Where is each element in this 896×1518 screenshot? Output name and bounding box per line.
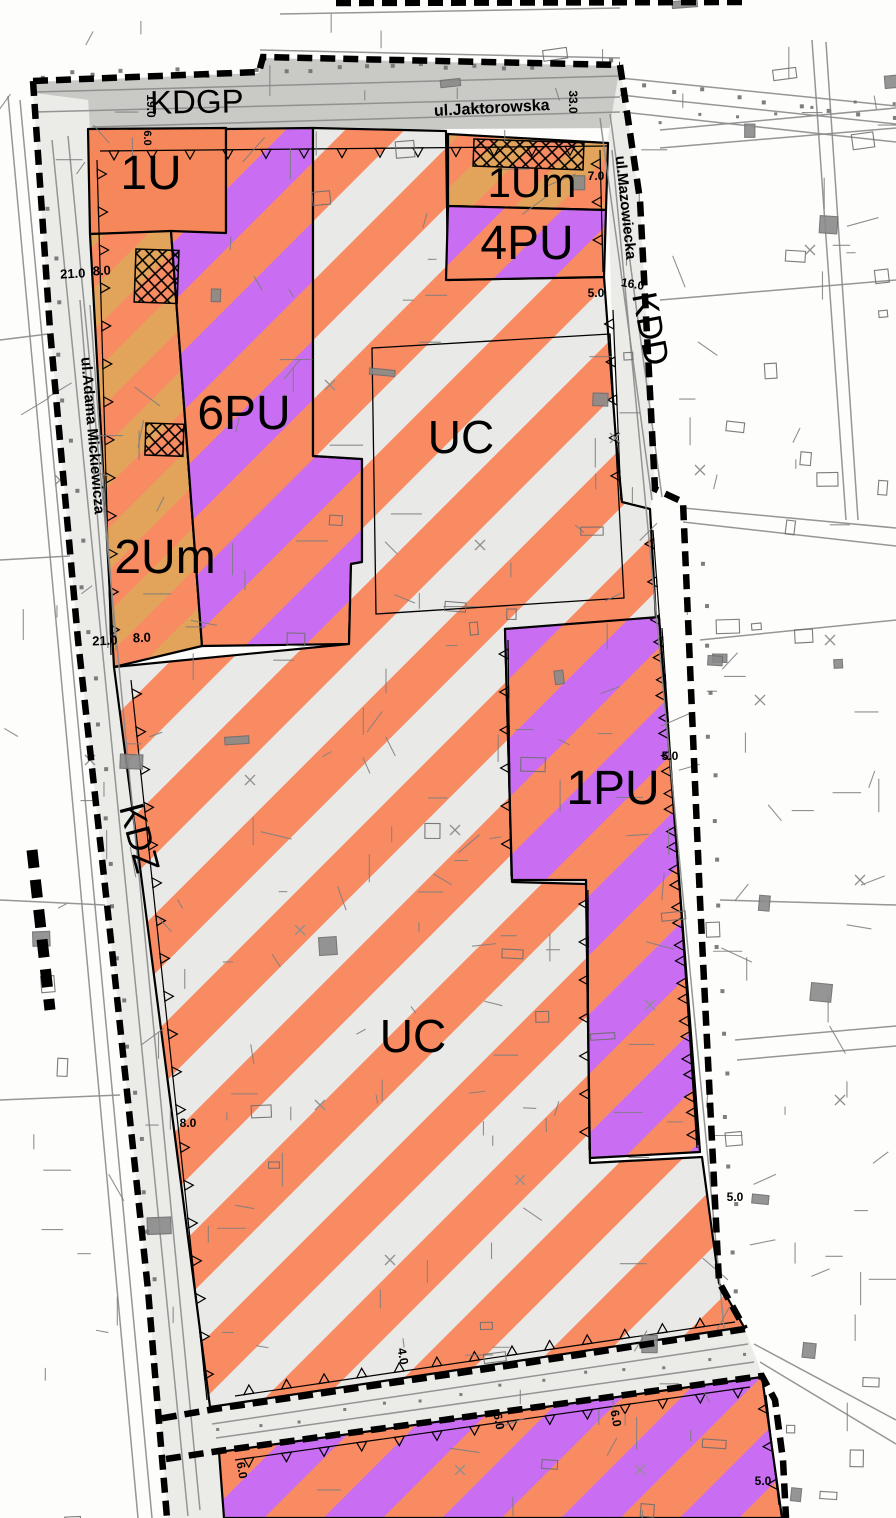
cadastre-tree-dot [70,70,74,74]
cadastre-tree-dot [57,300,61,304]
cadastre-tree-dot [45,207,49,211]
dim-5-0-b: 5.0 [662,749,679,763]
cadastre-tree-dot [142,1190,146,1194]
cadastre-tree-dot [734,1289,738,1293]
cadastre-tree-dot [713,819,717,823]
cadastre-tree-dot [530,66,534,70]
cadastre-tree-dot [94,676,98,680]
cadastre-tree-dot [715,945,719,949]
cadastre-tree-dot [698,113,701,116]
cadastre-tree-dot [743,1353,746,1356]
cadastre-tree-dot [153,1277,157,1281]
cadastre-tree-dot [810,106,813,109]
cadastre-tree-dot [893,102,896,105]
cadastre-tree-dot [726,1165,730,1169]
dim-19-0: 19.0 [144,94,158,118]
cadastre-tree-dot [701,562,705,566]
zone-label-1um: 1Um [488,159,577,206]
cadastre-tree-dot [700,87,704,91]
cadastre-building [147,1217,171,1235]
cadastre-building [440,79,460,88]
cadastre-tree-dot [140,1137,144,1141]
cadastre-tree-dot [672,90,676,94]
cadastre-tree-dot [502,66,506,70]
cadastre-tree-dot [856,112,860,116]
dim-8-0-c: 8.0 [180,1116,197,1130]
cadastre-tree-dot [736,115,739,118]
cadastre-tree-dot [69,439,73,443]
cadastre-tree-dot [705,644,709,648]
cadastre-tree-dot [216,1428,219,1431]
cadastre-tree-dot [662,1366,665,1369]
cadastre-building [884,74,896,88]
cadastre-tree-dot [86,630,90,634]
dim-8-0-b: 8.0 [133,630,152,646]
cadastre-tree-dot [854,100,857,103]
cadastre-building [318,937,337,956]
cadastre-tree-dot [459,1393,462,1396]
cadastre-segment [230,237,231,250]
dim-5-0-c: 5.0 [727,1190,744,1204]
cadastre-tree-dot [827,109,831,113]
cadastre-tree-dot [81,539,85,543]
cadastre-building [593,393,609,406]
cadastre-tree-dot [365,64,369,68]
dim-6-0-c: 6.0 [234,1461,251,1480]
cadastre-tree-dot [104,816,108,820]
cadastre-tree-dot [419,1399,422,1402]
zone-label-6pu: 6PU [197,387,290,440]
cadastre-tree-dot [109,862,113,866]
cadastre-tree-dot [738,95,742,99]
cadastre-tree-dot [774,112,777,115]
crosshatch-area [134,249,179,303]
cadastre-tree-dot [298,1420,301,1423]
cadastre-tree-dot [60,399,64,403]
cadastre-tree-dot [725,1071,729,1075]
cadastre-tree-dot [722,1032,726,1036]
zone-label-uc-north: UC [428,411,494,463]
cadastre-tree-dot [104,767,108,771]
cadastre-building [790,1488,801,1502]
cadastre-tree-dot [343,1408,346,1411]
cadastre-tree-dot [54,256,58,260]
cadastre-tree-dot [80,585,84,589]
dim-5-0-a: 5.0 [588,286,605,300]
cadastre-tree-dot [96,722,100,726]
cadastre-building [554,670,564,685]
cadastre-tree-dot [706,735,710,739]
cadastre-tree-dot [622,1368,625,1371]
dim-33-0: 33.0 [566,90,580,114]
cadastre-tree-dot [133,1091,137,1095]
cadastre-tree-dot [255,68,259,72]
cadastre-tree-dot [259,1424,262,1427]
cadastre-tree-dot [762,100,766,104]
cadastre-tree-dot [542,1379,545,1382]
dim-21-0-a: 21.0 [60,265,86,281]
road-label-kdgp: KDGP [150,82,244,121]
cadastre-building [819,216,838,234]
cadastre-tree-dot [338,65,342,69]
cadastre-tree-dot [176,67,180,71]
dim-8-0-a: 8.0 [92,263,111,279]
cadastre-building [225,736,250,745]
zoning-map: KDGPul.Jaktorowska19.06.033.01U1Um7.04PU… [0,0,896,1518]
cadastre-tree-dot [145,1230,149,1234]
cadastre-tree-dot [122,998,126,1002]
cadastre-building [752,1194,769,1205]
zoning-map-canvas: KDGPul.Jaktorowska19.06.033.01U1Um7.04PU… [0,0,896,1518]
cadastre-tree-dot [723,1115,727,1119]
cadastre-building [834,659,843,668]
cadastre-tree-dot [584,1371,587,1374]
cadastre-tree-dot [285,69,289,73]
crosshatch-area [145,423,184,456]
cadastre-tree-dot [716,904,720,908]
dim-6-0-d: 6.0 [608,1409,625,1428]
cadastre-tree-dot [709,691,713,695]
dim-5-0-d: 5.0 [755,1474,772,1488]
cadastre-building [802,1342,816,1358]
cadastre-tree-dot [308,69,312,73]
cadastre-tree-dot [720,989,724,993]
cadastre-tree-dot [705,604,709,608]
zone-label-uc-south: UC [380,1010,446,1062]
zone-label-1pu: 1PU [566,762,659,815]
cadastre-tree-dot [800,104,804,108]
dim-6-0-b: 6.0 [491,1412,508,1431]
zone-label-1u: 1U [120,147,181,200]
cadastre-tree-dot [659,121,662,124]
cadastre-tree-dot [715,858,719,862]
cadastre-tree-dot [56,353,60,357]
zone-label-4pu: 4PU [480,217,573,270]
cadastre-tree-dot [383,1402,386,1405]
dim-6-0-a: 6.0 [141,130,153,145]
cadastre-tree-dot [731,1250,735,1254]
cadastre-tree-dot [498,1384,501,1387]
dim-21-0-b: 21.0 [92,633,118,649]
cadastre-tree-dot [642,83,646,87]
zone-label-2um: 2Um [114,531,215,584]
cadastre-building [758,895,770,911]
cadastre-tree-dot [118,69,122,73]
dim-7-0: 7.0 [588,169,605,183]
dim-4-0: 4.0 [395,1347,412,1366]
cadastre-segment [523,1108,536,1109]
cadastre-building [211,289,221,302]
cadastre-building [810,983,833,1003]
cadastre-building [745,124,755,137]
cadastre-tree-dot [444,66,448,70]
cadastre-tree-dot [75,489,79,493]
cadastre-building [120,754,143,769]
cadastre-building [708,655,723,665]
cadastre-tree-dot [708,1358,711,1361]
cadastre-tree-dot [391,64,395,68]
cadastre-tree-dot [714,773,718,777]
